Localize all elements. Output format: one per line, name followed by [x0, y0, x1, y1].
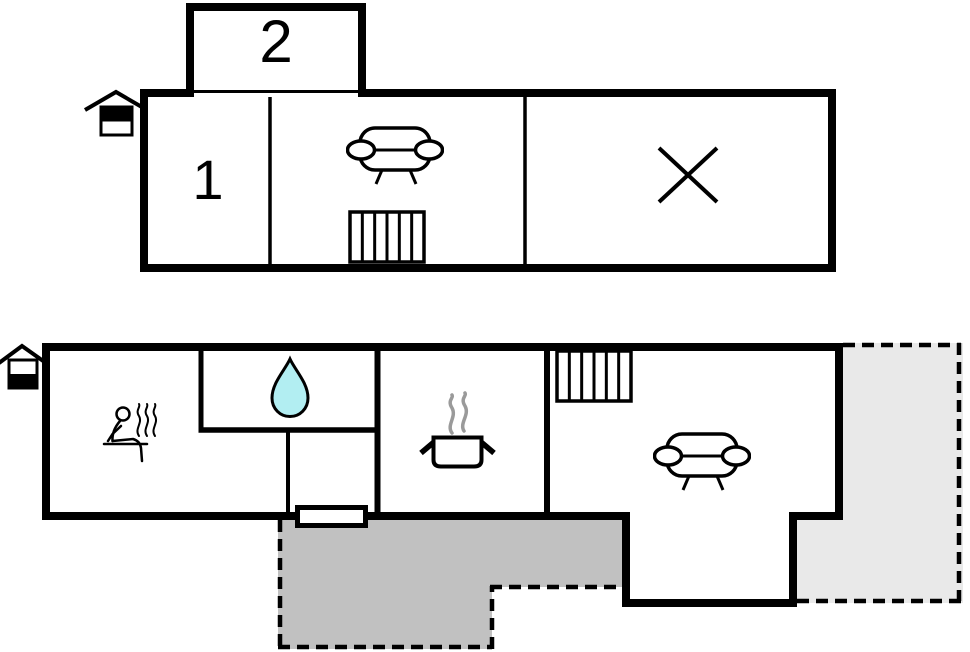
- floor-plan-canvas: 2 1: [0, 0, 970, 652]
- stairs-icon: [557, 351, 631, 401]
- house-lower-band: [8, 374, 39, 390]
- stairs-icon: [350, 212, 424, 262]
- house-upper-level-icon: [85, 92, 147, 135]
- entrance-door: [298, 508, 366, 526]
- house-ground-level-icon: [0, 346, 46, 390]
- upper-floor-plan: 2 1: [85, 7, 832, 268]
- room-1-label: 1: [192, 148, 223, 211]
- ground-floor-plan: [0, 343, 963, 649]
- upper-floor-building: [144, 93, 832, 268]
- house-upper-band: [100, 106, 134, 122]
- terrace-dark: [278, 514, 628, 649]
- terrace-dark-area: [278, 514, 628, 649]
- room-2-label: 2: [259, 8, 292, 75]
- pot-body: [434, 438, 482, 467]
